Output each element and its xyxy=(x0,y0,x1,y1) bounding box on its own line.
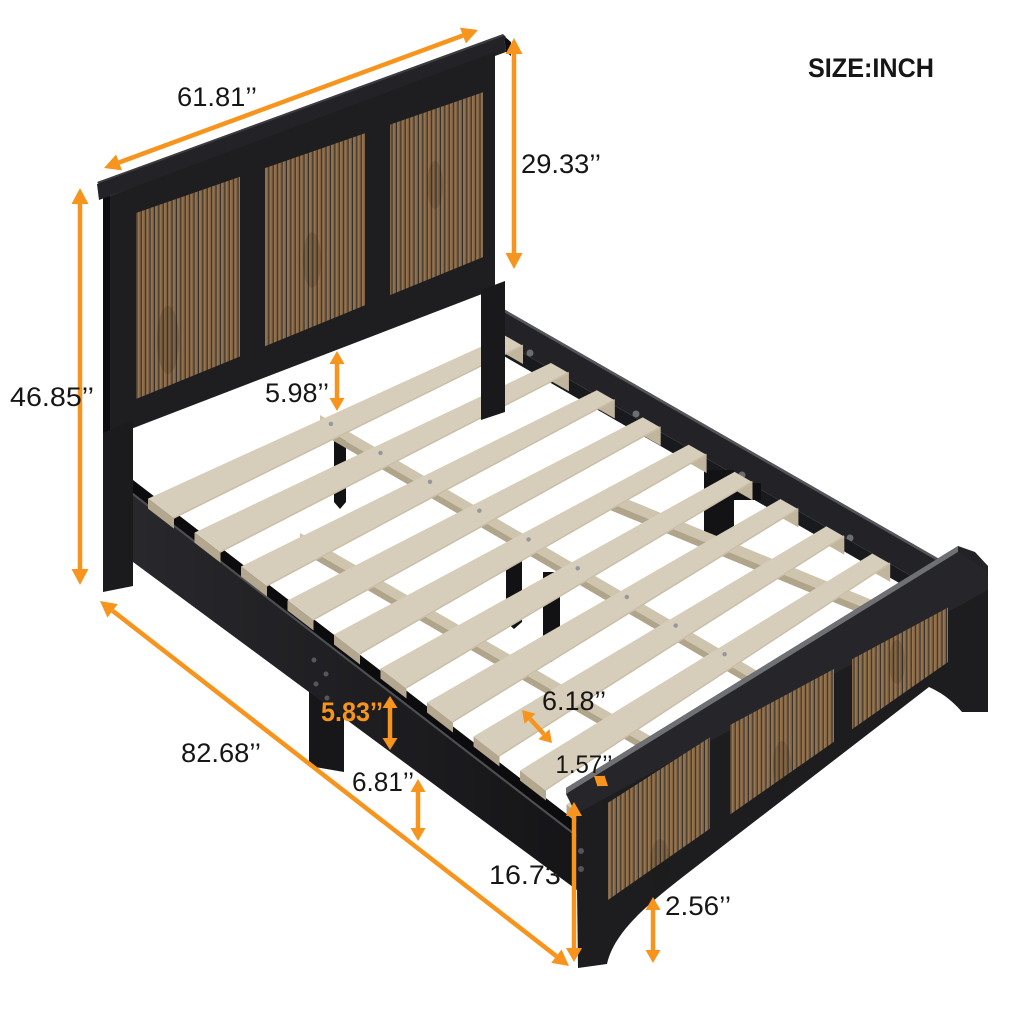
svg-text:6.18’’: 6.18’’ xyxy=(542,686,606,716)
svg-text:5.98’’: 5.98’’ xyxy=(265,378,329,408)
svg-text:29.33’’: 29.33’’ xyxy=(521,149,601,179)
svg-text:6.81’’: 6.81’’ xyxy=(352,767,414,797)
svg-text:2.56’’: 2.56’’ xyxy=(665,891,731,921)
svg-text:82.68’’: 82.68’’ xyxy=(181,738,261,768)
svg-text:61.81’’: 61.81’’ xyxy=(177,82,257,112)
svg-text:SIZE:INCH: SIZE:INCH xyxy=(808,53,934,83)
svg-text:5.83’’: 5.83’’ xyxy=(321,697,383,727)
svg-text:46.85’’: 46.85’’ xyxy=(10,382,94,412)
svg-text:1.57’’: 1.57’’ xyxy=(556,751,613,779)
svg-text:16.73’’: 16.73’’ xyxy=(489,860,573,890)
